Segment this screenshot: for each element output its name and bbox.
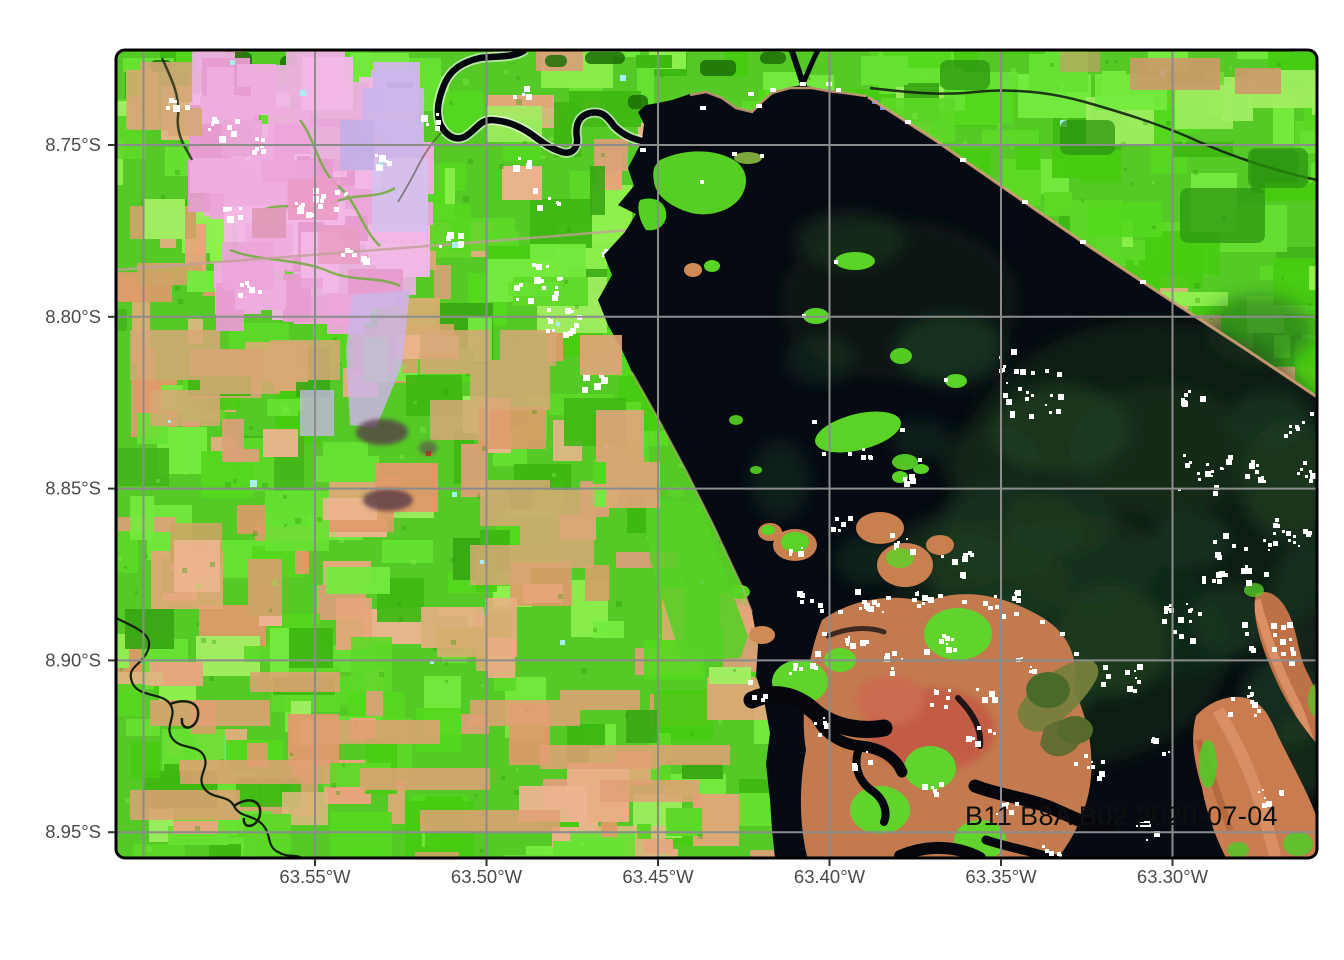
svg-text:63.45°W: 63.45°W [622,866,694,887]
svg-text:63.40°W: 63.40°W [794,866,866,887]
svg-text:8.95°S: 8.95°S [45,821,101,842]
svg-text:8.80°S: 8.80°S [45,306,101,327]
svg-text:63.55°W: 63.55°W [279,866,351,887]
svg-text:63.35°W: 63.35°W [965,866,1037,887]
svg-text:63.50°W: 63.50°W [451,866,523,887]
svg-text:63.30°W: 63.30°W [1137,866,1209,887]
svg-text:8.75°S: 8.75°S [45,134,101,155]
svg-text:8.85°S: 8.85°S [45,478,101,499]
svg-text:8.90°S: 8.90°S [45,649,101,670]
svg-text:B11 B8A B02 2020-07-04: B11 B8A B02 2020-07-04 [965,801,1278,831]
